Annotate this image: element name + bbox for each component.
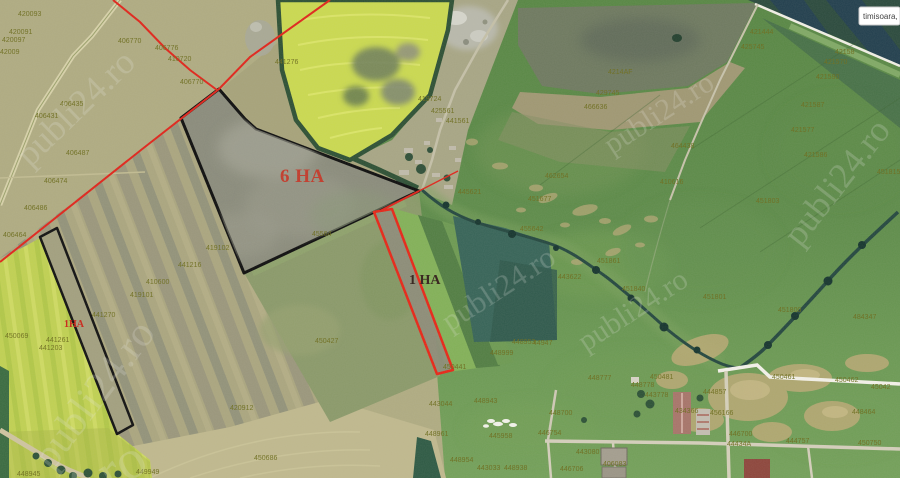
svg-text:timisoara,: timisoara,	[863, 12, 898, 21]
